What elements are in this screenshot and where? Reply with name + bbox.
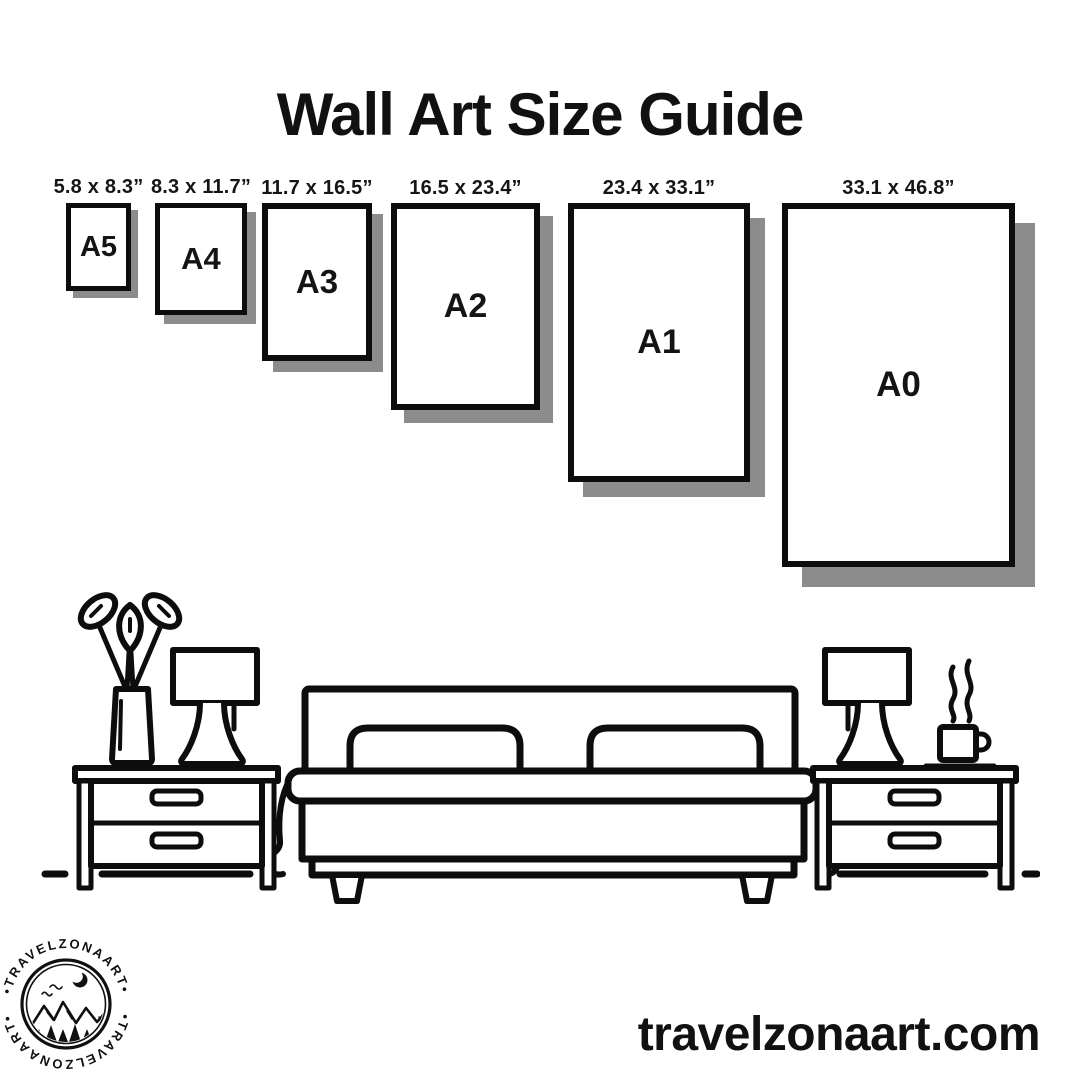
paper-size-a3: 11.7 x 16.5” A3 (262, 203, 372, 361)
size-dimensions-label: 5.8 x 8.3” (54, 176, 144, 199)
paper-size-a1: 23.4 x 33.1” A1 (568, 203, 750, 482)
size-letter-label: A0 (876, 365, 921, 405)
mattress-blanket (288, 771, 816, 801)
page-title: Wall Art Size Guide (0, 80, 1080, 149)
steam-icon (951, 667, 955, 721)
plant-vase-icon (75, 589, 185, 763)
double-bed-icon (267, 689, 837, 901)
lamp-shade (173, 650, 257, 703)
lamp-shade (825, 650, 909, 703)
bed-front-panel (302, 801, 804, 859)
size-letter-label: A3 (296, 263, 338, 301)
size-dimensions-label: 11.7 x 16.5” (261, 177, 372, 200)
paper-size-a5: 5.8 x 8.3” A5 (66, 203, 131, 291)
size-dimensions-label: 33.1 x 46.8” (842, 177, 955, 200)
drawer-handle (152, 834, 201, 847)
paper-size-a0: 33.1 x 46.8” A0 (782, 203, 1015, 567)
size-letter-label: A4 (181, 241, 221, 277)
website-url: travelzonaart.com (638, 1007, 1040, 1062)
table-lamp-icon (173, 650, 257, 764)
drawer-handle (890, 834, 939, 847)
size-letter-label: A2 (444, 287, 487, 326)
steam-icon (967, 661, 971, 721)
drawer-handle (890, 791, 939, 804)
size-letter-label: A5 (80, 231, 117, 264)
nightstand-icon (75, 768, 278, 888)
paper-size-a2: 16.5 x 23.4” A2 (391, 203, 540, 410)
bed-base (312, 859, 794, 875)
size-dimensions-label: 23.4 x 33.1” (603, 177, 716, 200)
paper-size-a4: 8.3 x 11.7” A4 (155, 203, 247, 315)
bed-leg (332, 875, 362, 901)
bedroom-scene-illustration (40, 578, 1040, 908)
vase (112, 689, 152, 763)
drawer-handle (152, 791, 201, 804)
coffee-mug-icon (926, 661, 994, 766)
nightstand-icon (813, 768, 1016, 888)
mug-body (940, 727, 976, 760)
size-dimensions-label: 16.5 x 23.4” (409, 177, 522, 200)
stem (127, 653, 133, 689)
size-dimensions-label: 8.3 x 11.7” (151, 176, 251, 199)
size-letter-label: A1 (637, 323, 680, 362)
table-lamp-icon (825, 650, 909, 764)
vase-detail (120, 701, 121, 749)
logo-outer-circle (22, 960, 110, 1048)
brand-logo: •TRAVELZONAART• •TRAVELZONAART• (0, 930, 150, 1080)
bed-leg (742, 875, 772, 901)
